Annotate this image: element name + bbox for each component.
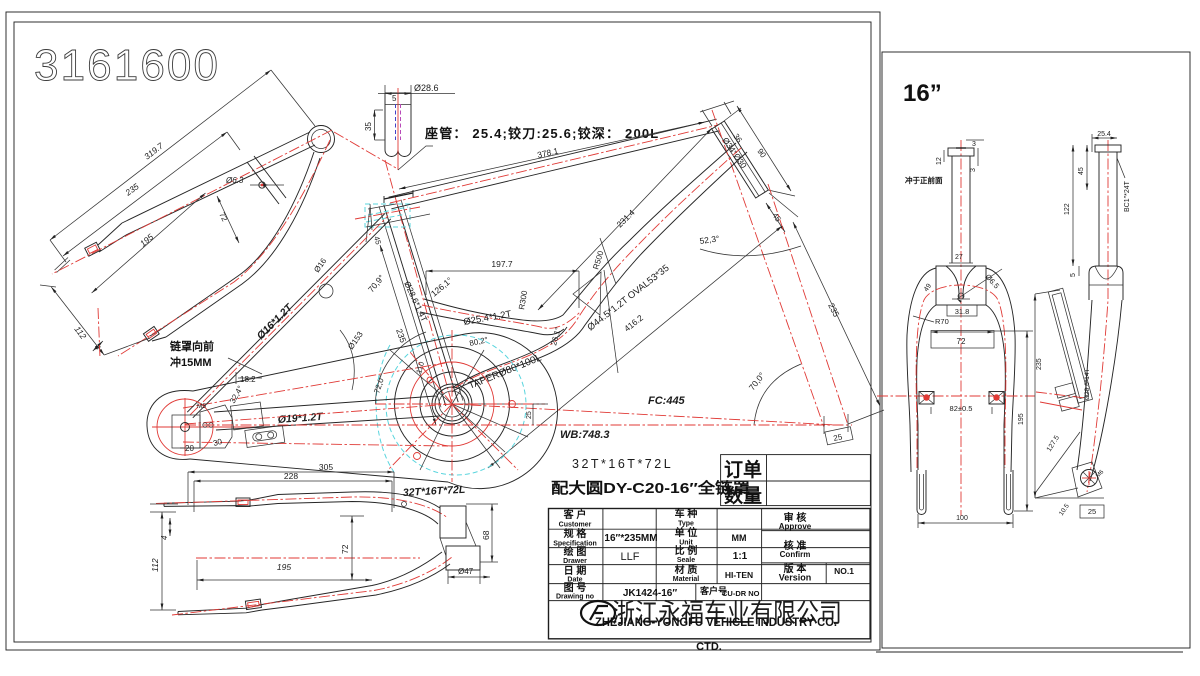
svg-text:ZHEJIANG-YONGFU VEHICLE INDUST: ZHEJIANG-YONGFU VEHICLE INDUSTRY CO.: [595, 615, 837, 629]
svg-text:冲15MM: 冲15MM: [170, 355, 212, 369]
svg-text:25.4: 25.4: [1097, 131, 1111, 138]
svg-text:68: 68: [481, 530, 491, 540]
svg-text:座管： 25.4;铰刀:25.6;铰深： 200L: 座管： 25.4;铰刀:25.6;铰深： 200L: [424, 126, 659, 141]
svg-text:Material: Material: [673, 576, 700, 583]
svg-text:3: 3: [970, 168, 977, 172]
svg-text:82±0.5: 82±0.5: [950, 404, 973, 413]
svg-text:27: 27: [955, 254, 963, 261]
svg-text:1:1: 1:1: [733, 551, 748, 562]
svg-text:12: 12: [936, 157, 943, 165]
svg-text:197.7: 197.7: [491, 259, 513, 269]
svg-text:72: 72: [957, 337, 966, 346]
svg-text:112: 112: [150, 558, 160, 572]
svg-text:日 期: 日 期: [564, 564, 587, 577]
svg-text:单 位: 单 位: [675, 526, 698, 539]
svg-text:305: 305: [319, 462, 333, 472]
svg-text:CU-DR NO: CU-DR NO: [722, 589, 760, 598]
svg-text:Ø28.6: Ø28.6: [414, 83, 439, 93]
svg-text:45: 45: [1078, 167, 1085, 175]
svg-text:25: 25: [1088, 507, 1096, 516]
svg-text:4: 4: [160, 535, 169, 540]
svg-text:Customer: Customer: [559, 522, 592, 529]
svg-text:冲于正前面: 冲于正前面: [905, 175, 943, 185]
svg-text:32T*16T*72L: 32T*16T*72L: [572, 457, 673, 471]
svg-text:NO.1: NO.1: [834, 566, 854, 576]
svg-text:195: 195: [1018, 413, 1025, 425]
svg-text:Seale: Seale: [677, 557, 695, 564]
svg-text:Ø6.3: Ø6.3: [225, 176, 244, 185]
svg-text:客 户: 客 户: [563, 508, 587, 521]
svg-text:图 号: 图 号: [564, 582, 587, 594]
svg-text:Drawing no: Drawing no: [556, 594, 594, 601]
svg-text:195: 195: [277, 562, 291, 572]
svg-text:18.2: 18.2: [240, 375, 256, 384]
svg-text:72: 72: [340, 544, 350, 554]
svg-text:车 种: 车 种: [675, 507, 698, 520]
svg-text:35: 35: [364, 122, 373, 131]
svg-text:Confirm: Confirm: [780, 550, 811, 559]
svg-text:Drawer: Drawer: [563, 558, 587, 565]
svg-text:材 质: 材 质: [675, 563, 698, 576]
svg-text:BC1″*24T: BC1″*24T: [1124, 180, 1131, 212]
svg-text:20: 20: [185, 444, 194, 453]
svg-text:CTD.: CTD.: [696, 641, 722, 653]
svg-text:Approve: Approve: [779, 522, 812, 531]
svg-text:Type: Type: [678, 521, 694, 528]
svg-text:5: 5: [1070, 273, 1077, 277]
svg-text:数量: 数量: [724, 484, 762, 507]
svg-text:Version: Version: [779, 573, 812, 583]
svg-text:31.8: 31.8: [955, 307, 970, 316]
svg-text:链罩向前: 链罩向前: [170, 339, 214, 353]
svg-text:规 格: 规 格: [564, 527, 588, 540]
svg-text:M5: M5: [197, 403, 206, 410]
svg-text:16”: 16”: [903, 80, 942, 107]
svg-text:订单: 订单: [724, 458, 762, 481]
svg-text:LLF: LLF: [621, 551, 640, 563]
svg-text:228: 228: [284, 471, 298, 481]
svg-text:比 例: 比 例: [675, 544, 698, 557]
svg-text:Ø47: Ø47: [458, 567, 474, 576]
svg-text:WB:748.3: WB:748.3: [560, 429, 610, 441]
svg-text:5: 5: [392, 94, 397, 103]
svg-text:绘 图: 绘 图: [564, 545, 587, 558]
svg-text:3161600: 3161600: [34, 41, 220, 90]
svg-text:HI-TEN: HI-TEN: [725, 570, 753, 580]
svg-text:235: 235: [1036, 358, 1043, 370]
svg-text:FC:445: FC:445: [648, 395, 686, 407]
svg-text:R70: R70: [935, 317, 949, 326]
svg-text:25: 25: [526, 411, 533, 419]
svg-text:MM: MM: [732, 533, 747, 543]
svg-text:122: 122: [1064, 203, 1071, 215]
svg-text:16″*235MM: 16″*235MM: [604, 533, 657, 544]
svg-text:3: 3: [972, 141, 976, 148]
svg-text:100: 100: [956, 515, 968, 522]
